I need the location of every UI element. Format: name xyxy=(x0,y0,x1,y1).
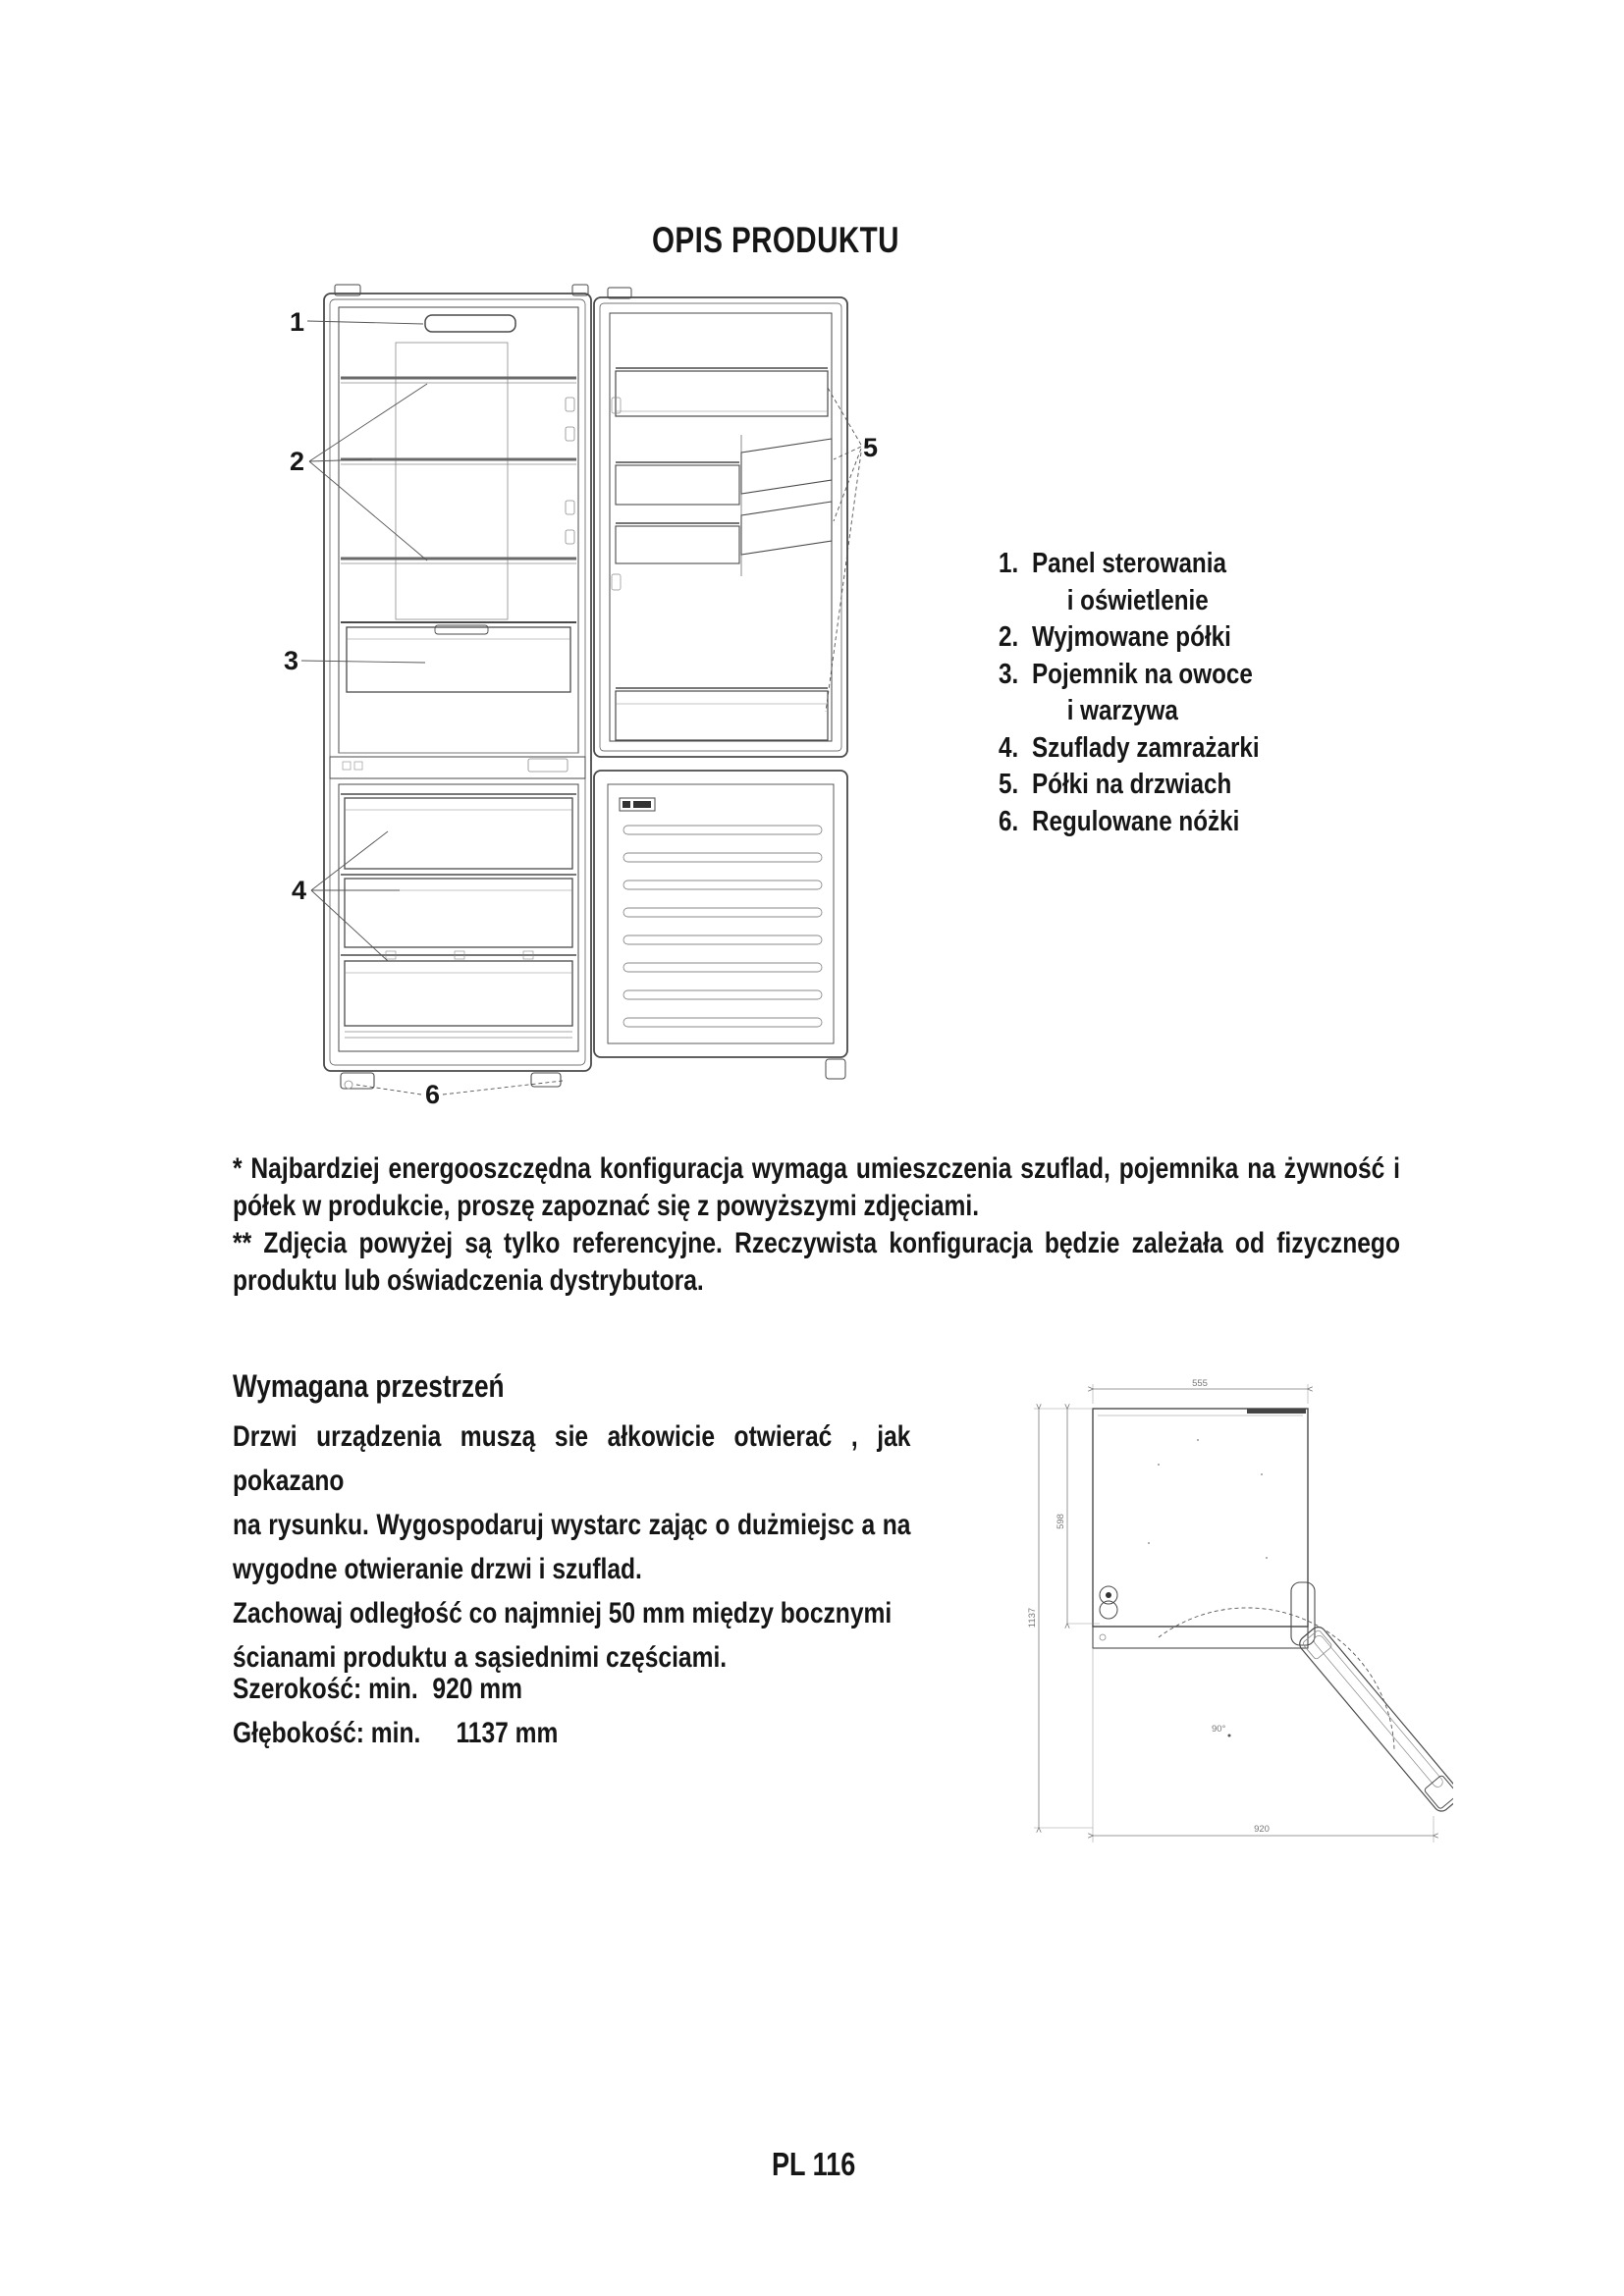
dim-width-total-label: 920 xyxy=(1254,1824,1270,1835)
dimension-depth: Głębokość: min.1137 mm xyxy=(233,1711,558,1755)
dimension-lines: 555 598 1137 920 xyxy=(1027,1378,1434,1842)
parts-list-item: 1. Panel sterowania xyxy=(999,546,1260,583)
parts-list-item: 3. Pojemnik na owoce xyxy=(999,657,1260,694)
door-angle-label: 90° xyxy=(1212,1724,1226,1735)
cabinet-top-view xyxy=(1093,1409,1315,1648)
item-number: 3. xyxy=(999,657,1032,694)
item-number: 2. xyxy=(999,619,1032,657)
door-swing-arc xyxy=(1159,1608,1394,1749)
hinge-roller xyxy=(1100,1586,1117,1619)
paragraph-line: Drzwi urządzenia muszą sie ałkowicie otw… xyxy=(233,1415,910,1503)
freezer-drawers-group xyxy=(339,784,578,1051)
callout-2: 2 xyxy=(290,447,304,476)
paragraph-line: Zachowaj odległość co najmniej 50 mm mię… xyxy=(233,1591,910,1635)
paragraph-line: na rysunku. Wygospodaruj wystarc zając o… xyxy=(233,1503,910,1547)
depth-label: Głębokość: min. xyxy=(233,1717,420,1749)
dim-depth-cabinet-label: 598 xyxy=(1056,1514,1066,1529)
item-label: Panel sterowania xyxy=(1032,546,1226,583)
page-title: OPIS PRODUKTU xyxy=(652,220,899,261)
callout-5: 5 xyxy=(863,433,878,462)
callout-3: 3 xyxy=(284,646,298,675)
freezer-door-view xyxy=(594,771,847,1079)
item-number: 5. xyxy=(999,767,1032,804)
item-number: 1. xyxy=(999,546,1032,583)
item-label-continued: i oświetlenie xyxy=(999,583,1260,620)
item-label: Wyjmowane półki xyxy=(1032,619,1231,657)
parts-list: 1. Panel sterowania i oświetlenie 2. Wyj… xyxy=(999,546,1260,840)
dim-top-label: 555 xyxy=(1192,1378,1208,1389)
parts-list-item: 6. Regulowane nóżki xyxy=(999,804,1260,841)
door-inner-view xyxy=(594,288,847,1079)
page-number: PL 116 xyxy=(772,2146,855,2183)
item-label-continued: i warzywa xyxy=(999,693,1260,730)
open-door xyxy=(1297,1624,1453,1814)
adjustable-feet xyxy=(341,1073,561,1089)
callout-6: 6 xyxy=(425,1080,440,1104)
configuration-notes: * Najbardziej energooszczędna konfigurac… xyxy=(233,1150,1400,1300)
width-value: 920 mm xyxy=(432,1667,522,1711)
depth-value: 1137 mm xyxy=(456,1711,558,1755)
parts-list-item: 5. Półki na drzwiach xyxy=(999,767,1260,804)
door-shelves-group xyxy=(612,368,832,740)
required-space-paragraph: Drzwi urządzenia muszą sie ałkowicie otw… xyxy=(233,1415,910,1680)
item-number: 4. xyxy=(999,730,1032,768)
compartment-divider xyxy=(330,757,585,778)
item-label: Półki na drzwiach xyxy=(1032,767,1231,804)
product-diagram: 1 2 3 4 5 6 xyxy=(278,280,887,1104)
item-label: Pojemnik na owoce xyxy=(1032,657,1253,694)
fridge-cabinet-view xyxy=(324,285,591,1089)
callouts: 1 2 3 4 5 6 xyxy=(284,307,878,1104)
dimension-list: Szerokość: min.920 mm Głębokość: min.113… xyxy=(233,1667,558,1755)
note-line: ** Zdjęcia powyżej są tylko referencyjne… xyxy=(233,1225,1400,1262)
item-label: Regulowane nóżki xyxy=(1032,804,1239,841)
width-label: Szerokość: min. xyxy=(233,1673,418,1705)
parts-list-item: 4. Szuflady zamrażarki xyxy=(999,730,1260,768)
dim-depth-total-label: 1137 xyxy=(1027,1608,1038,1628)
dimension-width: Szerokość: min.920 mm xyxy=(233,1667,558,1711)
manual-page: OPIS PRODUKTU xyxy=(0,0,1624,2296)
control-panel-lamp xyxy=(425,315,515,332)
callout-1: 1 xyxy=(290,307,304,337)
item-label: Szuflady zamrażarki xyxy=(1032,730,1260,768)
paragraph-line: wygodne otwieranie drzwi i szuflad. xyxy=(233,1547,910,1591)
note-line: * Najbardziej energooszczędna konfigurac… xyxy=(233,1150,1400,1188)
space-diagram: 90° 555 598 1137 920 xyxy=(1011,1347,1453,1857)
freezer-model-chip xyxy=(620,798,655,811)
item-number: 6. xyxy=(999,804,1032,841)
shelves-group xyxy=(341,378,576,563)
parts-list-item: 2. Wyjmowane półki xyxy=(999,619,1260,657)
callout-4: 4 xyxy=(292,876,306,905)
section-heading-required-space: Wymagana przestrzeń xyxy=(233,1368,505,1405)
crisper-drawer xyxy=(341,622,576,692)
note-line: półek w produkcie, proszę zapoznać się z… xyxy=(233,1188,1400,1225)
note-line: produktu lub oświadczenia dystrybutora. xyxy=(233,1262,1400,1300)
